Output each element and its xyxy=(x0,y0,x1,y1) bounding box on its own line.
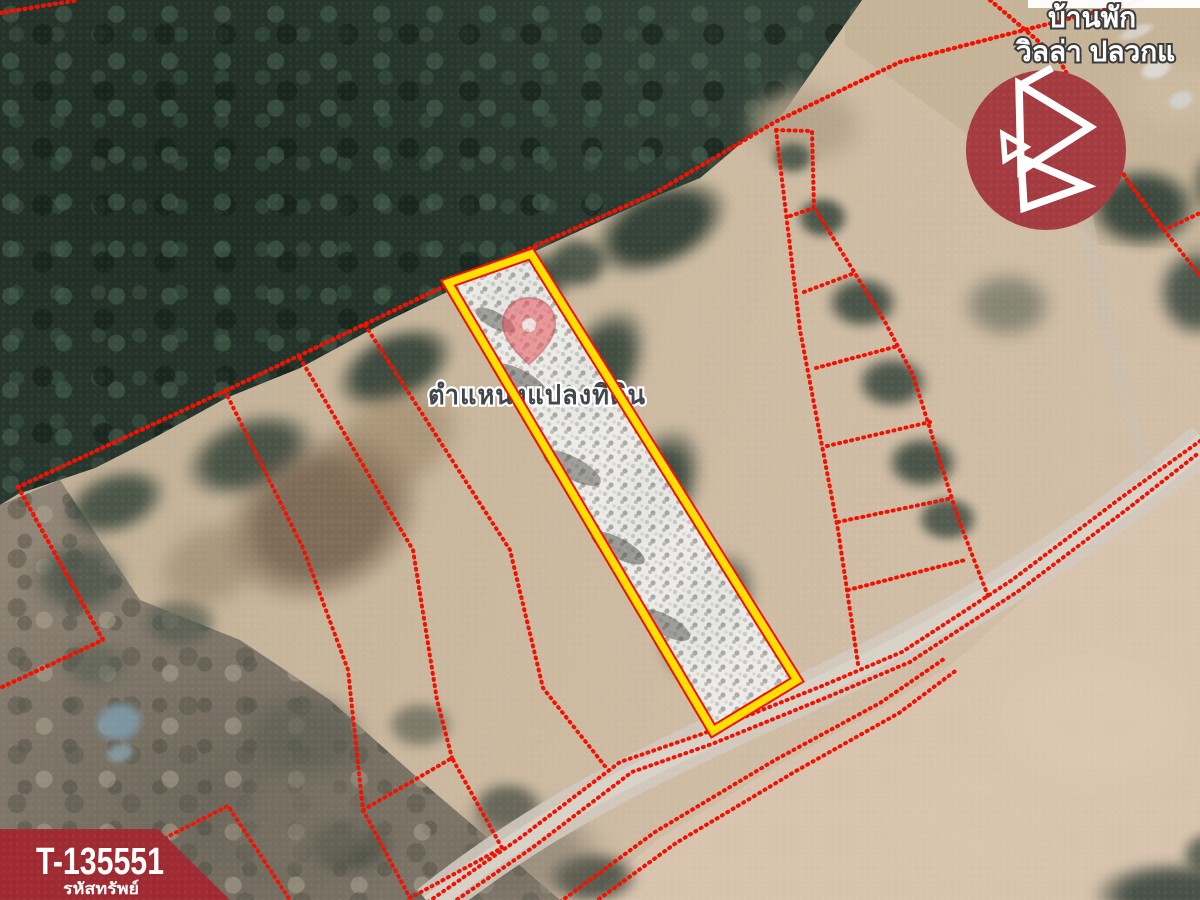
highlighted-parcel xyxy=(448,254,797,731)
place-name-line2: วิลล่า ปลวกแ xyxy=(1015,36,1175,67)
satellite-map-image: ตำแหน่งแปลงที่ดิน บ้านพัก วิลล่า ปลวกแ xyxy=(0,0,1200,900)
place-name-label: บ้านพัก วิลล่า ปลวกแ xyxy=(1015,0,1200,67)
place-name-line1: บ้านพัก xyxy=(1048,2,1136,33)
property-code: T-135551 xyxy=(36,841,164,883)
road xyxy=(430,115,1200,900)
brand-watermark xyxy=(966,68,1126,230)
property-code-caption: รหัสทรัพย์ xyxy=(63,879,139,898)
cadastral-overlay: ตำแหน่งแปลงที่ดิน บ้านพัก วิลล่า ปลวกแ xyxy=(0,0,1200,900)
property-code-badge: T-135551 รหัสทรัพย์ xyxy=(0,829,230,900)
